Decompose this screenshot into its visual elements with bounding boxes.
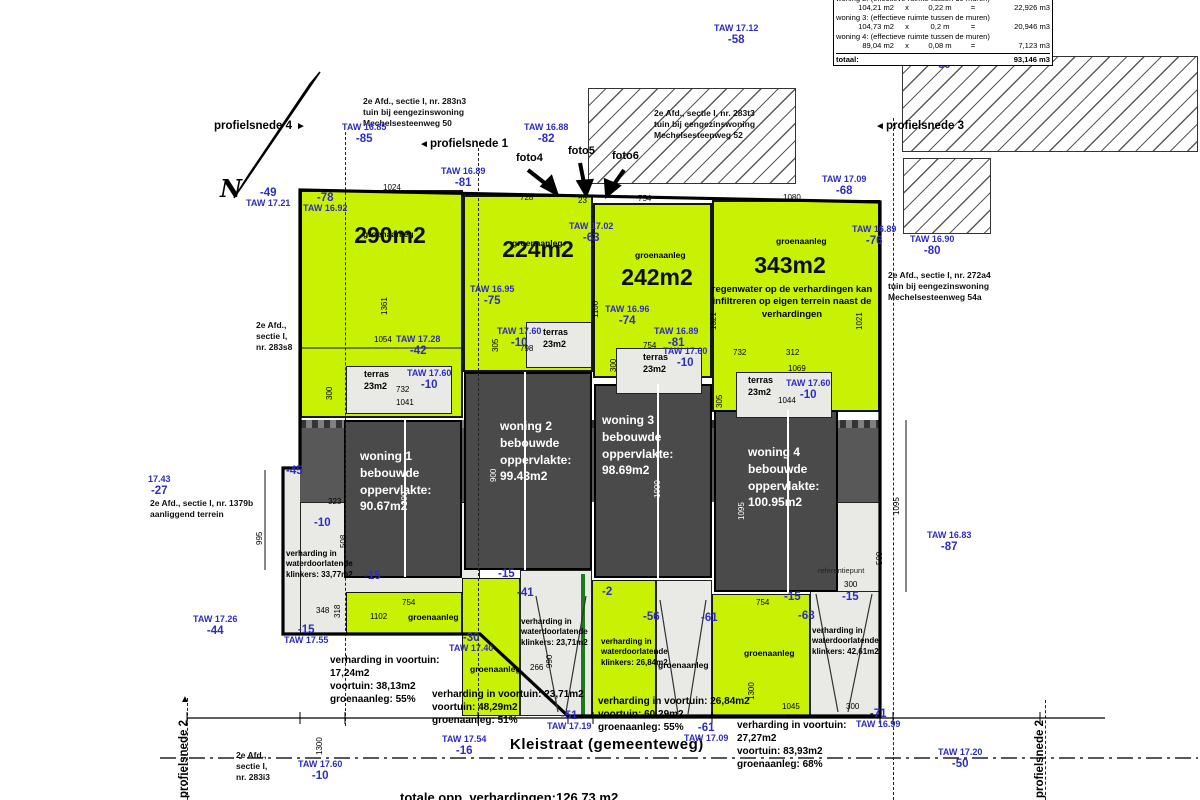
taw-elevation-marker: TAW 17.60-10 xyxy=(298,760,342,782)
taw-elevation-marker: 17.43-27 xyxy=(148,475,171,497)
taw-elevation-marker: TAW 16.83-87 xyxy=(927,531,971,553)
dimension-label: 300 xyxy=(610,359,618,372)
dimension-label: 318 xyxy=(334,605,342,618)
table-value-row: 104,21 m2x0,22 m=22,926 m3 xyxy=(836,3,1050,12)
building-label: woning 3bebouwdeoppervlakte:98.69m2 xyxy=(602,412,673,479)
profile-arrow-icon: ◄ xyxy=(875,121,885,132)
taw-elevation-marker: TAW 17.02-63 xyxy=(569,222,613,244)
groenaanleg-label: groenaanleg xyxy=(744,648,795,658)
taw-elevation-marker: TAW 17.60-10 xyxy=(786,379,830,401)
street-name-label: Kleistraat (gemeenteweg) xyxy=(510,736,704,753)
taw-elevation-marker: TAW 16.96-74 xyxy=(605,305,649,327)
level-offset-marker: -15 xyxy=(784,592,801,604)
volume-summary-table: woning 2: (effectieve ruimte tussen de m… xyxy=(833,0,1053,66)
groenaanleg-label: groenaanleg xyxy=(470,664,521,674)
dimension-label: 348 xyxy=(316,607,329,615)
profile-arrow-icon: ▲ xyxy=(180,694,190,705)
profile-section-label: profielsnede 1 xyxy=(430,138,508,150)
dimension-label: 1045 xyxy=(782,703,800,711)
reference-point-label: referentiepunt xyxy=(818,566,864,575)
level-offset-marker: -15 xyxy=(364,571,381,583)
taw-elevation-marker: TAW 17.26-44 xyxy=(193,615,237,637)
building-label: woning 1bebouwdeoppervlakte:90.67m2 xyxy=(360,448,431,515)
level-offset-marker: -15 xyxy=(498,569,515,581)
dimension-label: 323 xyxy=(328,498,341,506)
taw-elevation-marker: TAW 17.09-68 xyxy=(822,175,866,197)
dimension-label: 1069 xyxy=(788,365,806,373)
dimension-label: 1024 xyxy=(383,184,401,192)
table-label-row: woning 3: (effectieve ruimte tussen de m… xyxy=(836,13,1050,22)
north-label: N xyxy=(220,174,242,203)
table-total-row: totaal:93,146 m3 xyxy=(836,53,1050,64)
taw-elevation-marker: TAW 17.28-42 xyxy=(396,335,440,357)
paving-annotation: verharding inwaterdoorlatendeklinkers: 2… xyxy=(601,637,668,668)
dimension-label: 1095 xyxy=(738,502,746,520)
paving-annotation: verharding in voortuin:27,27m2voortuin: … xyxy=(737,719,846,771)
dimension-label: 1041 xyxy=(396,399,414,407)
paving-annotation: verharding inwaterdoorlatendeklinkers: 3… xyxy=(286,549,353,580)
dimension-label: 266 xyxy=(530,664,543,672)
plan-linework xyxy=(0,0,1200,800)
dimension-label: 1054 xyxy=(374,336,392,344)
paving-annotation: verharding inwaterdoorlatendeklinkers: 2… xyxy=(521,617,588,648)
level-offset-marker: -45 xyxy=(286,466,303,478)
taw-elevation-marker: -71TAW 16.99 xyxy=(856,708,900,730)
dimension-label: 754 xyxy=(756,599,769,607)
taw-elevation-marker: -15TAW 17.55 xyxy=(284,624,328,646)
parcel-groenaanleg-label: groenaanleg xyxy=(635,250,686,260)
dimension-label: 1000 xyxy=(654,480,662,498)
table-label-row: woning 4: (effectieve ruimte tussen de m… xyxy=(836,32,1050,41)
table-value-row: 89,04 m2x0,08 m=7,123 m3 xyxy=(836,41,1050,50)
terrace-label: terras23m2 xyxy=(748,374,773,398)
taw-elevation-marker: TAW 17.60-10 xyxy=(497,327,541,349)
level-offset-marker: -56 xyxy=(643,612,660,624)
dimension-label: 728 xyxy=(520,194,533,202)
terrace-label: terras23m2 xyxy=(364,368,389,392)
cadastre-note: 2e Afd., sectie I, nr. 283t3tuin bij een… xyxy=(654,108,755,141)
table-value-row: 104,73 m2x0,2 m=20,946 m3 xyxy=(836,22,1050,31)
terrace-label: terras23m2 xyxy=(543,326,568,350)
white-dim-lines xyxy=(405,372,788,592)
paving-annotation: verharding in voortuin: 26,84m2voortuin:… xyxy=(598,695,750,734)
paving-annotation: verharding inwaterdoorlatendeklinkers: 4… xyxy=(812,626,879,657)
dimension-label: 754 xyxy=(638,195,651,203)
dimension-label: 508 xyxy=(340,535,348,548)
dimension-label: 1080 xyxy=(783,194,801,202)
site-plan-canvas: woning 2: (effectieve ruimte tussen de m… xyxy=(0,0,1200,800)
paving-annotation: verharding in voortuin: 23,71m2voortuin:… xyxy=(432,688,584,727)
groenaanleg-label: groenaanleg xyxy=(408,612,459,622)
dimension-label: 23 xyxy=(578,197,587,205)
dimension-label: 1300 xyxy=(316,737,324,755)
taw-elevation-marker: TAW 17.12-58 xyxy=(714,24,758,46)
north-arrow-icon xyxy=(234,72,320,198)
level-offset-marker: -10 xyxy=(314,518,331,530)
dimension-label: 1095 xyxy=(893,497,901,515)
dimension-label: 732 xyxy=(733,349,746,357)
cadastre-note: 2e Afd., sectie I, nr. 272a4tuin bij een… xyxy=(888,270,991,303)
dimension-label: 305 xyxy=(716,395,724,408)
taw-elevation-marker: TAW 17.20-50 xyxy=(938,748,982,770)
dimension-label: 990 xyxy=(546,655,554,668)
photo-direction-arrows xyxy=(528,163,624,195)
cadastre-note: 2e Afd.,sectie I,nr. 283s8 xyxy=(256,320,292,353)
level-offset-marker: -15 xyxy=(842,592,859,604)
dimension-label: 300 xyxy=(326,387,334,400)
level-offset-marker: -41 xyxy=(517,588,534,600)
dimension-label: 500 xyxy=(876,552,884,565)
dimension-label: 900 xyxy=(490,469,498,482)
parcel-area-label: 224m2 xyxy=(502,236,574,263)
taw-elevation-marker: TAW 17.60-10 xyxy=(407,369,451,391)
building-label: woning 2bebouwdeoppervlakte:99.43m2 xyxy=(500,418,571,485)
cadastre-note: 2e Afd., sectie I, nr. 1379baanliggend t… xyxy=(150,498,253,520)
level-offset-marker: -2 xyxy=(602,587,612,599)
parcel-area-label: 343m2 xyxy=(754,252,826,279)
dimension-label: 312 xyxy=(786,349,799,357)
profile-section-label: profielsnede 4 xyxy=(214,120,292,132)
taw-elevation-marker: TAW 16.88-82 xyxy=(524,123,568,145)
profile-arrow-icon: ◄ xyxy=(419,139,429,150)
photo-label: foto4 xyxy=(516,152,543,164)
level-offset-marker: -68 xyxy=(798,611,815,623)
dimension-label: 995 xyxy=(256,532,264,545)
level-offset-marker: -61 xyxy=(701,613,718,625)
dimension-label: 300 xyxy=(844,581,857,589)
total-paving-note: totale opp. verhardingen:126,73 m2 xyxy=(400,790,618,800)
taw-elevation-marker: TAW 17.54-16 xyxy=(442,735,486,757)
profile-section-label: profielsnede 3 xyxy=(886,120,964,132)
parcel-infiltration-note: regenwater op de verhardingen kan infilt… xyxy=(705,284,880,321)
taw-elevation-marker: TAW 16.89-76 xyxy=(852,225,896,247)
photo-label: foto5 xyxy=(568,145,595,157)
profile-section-label: profielsnede 2 xyxy=(178,720,190,798)
building-label: woning 4bebouwdeoppervlakte:100.95m2 xyxy=(748,444,819,511)
taw-elevation-marker: TAW 16.85-85 xyxy=(342,123,386,145)
taw-elevation-marker: -78TAW 16.92 xyxy=(303,192,347,214)
taw-elevation-marker: -30TAW 17.40 xyxy=(449,632,493,654)
parcel-groenaanleg-label: groenaanleg xyxy=(776,236,827,246)
taw-elevation-marker: TAW 17.60-10 xyxy=(663,347,707,369)
paving-annotation: verharding in voortuin:17,24m2voortuin: … xyxy=(330,654,439,706)
dimension-label: 754 xyxy=(402,599,415,607)
dimension-label: 1100 xyxy=(592,301,600,318)
taw-elevation-marker: TAW 16.90-80 xyxy=(910,235,954,257)
parcel-area-label: 290m2 xyxy=(354,222,426,249)
dimension-label: 1102 xyxy=(370,613,387,621)
taw-elevation-marker: TAW 16.89-81 xyxy=(441,167,485,189)
taw-elevation-marker: -49TAW 17.21 xyxy=(246,187,290,209)
profile-section-label: profielsnede 2 xyxy=(1034,720,1046,798)
cadastre-note: 2e Afd.,sectie I,nr. 283i3 xyxy=(236,750,270,783)
dimension-label: 1361 xyxy=(381,297,389,315)
photo-label: foto6 xyxy=(612,150,639,162)
taw-elevation-marker: TAW 16.95-75 xyxy=(470,285,514,307)
parcel-area-label: 242m2 xyxy=(621,264,693,291)
profile-arrow-icon: ► xyxy=(296,121,306,132)
